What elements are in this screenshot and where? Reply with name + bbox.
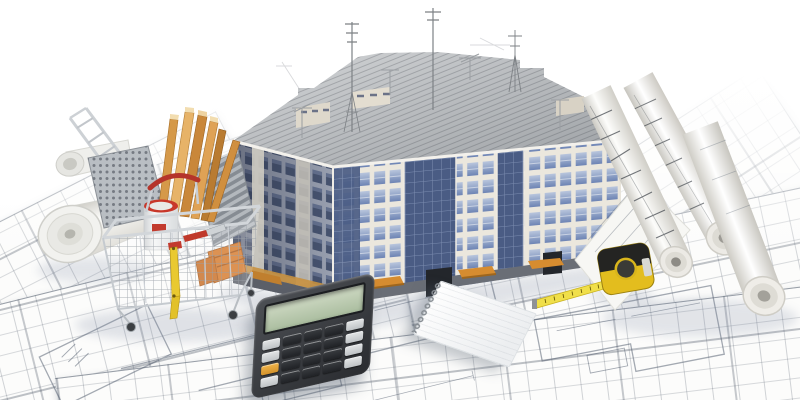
calculator-key: [304, 328, 322, 341]
calculator-key: [323, 360, 341, 373]
calculator-key: [344, 355, 362, 368]
west-pilaster: [296, 157, 310, 294]
curtain-wall: [497, 150, 524, 276]
calculator-key: [282, 345, 300, 358]
calculator-key: [345, 331, 363, 344]
calculator-key: [281, 370, 299, 383]
calculator-key: [324, 335, 342, 348]
calculator-key: [262, 337, 280, 350]
calculator-key: [303, 340, 321, 353]
tape-body: [596, 242, 655, 296]
building-model: [233, 8, 620, 305]
calculator-key: [323, 348, 341, 361]
calculator-key: [282, 357, 300, 370]
calculator-key-accent: [261, 362, 279, 375]
calculator-key: [302, 365, 320, 378]
calculator-key: [262, 350, 280, 363]
scene: [0, 0, 800, 400]
calculator-key: [325, 323, 343, 336]
scene-artwork: [0, 0, 800, 400]
calculator-key: [303, 353, 321, 366]
calculator-key: [346, 318, 364, 331]
calculator-key: [260, 375, 278, 388]
calculator-key: [344, 343, 362, 356]
calculator-key: [283, 333, 301, 346]
